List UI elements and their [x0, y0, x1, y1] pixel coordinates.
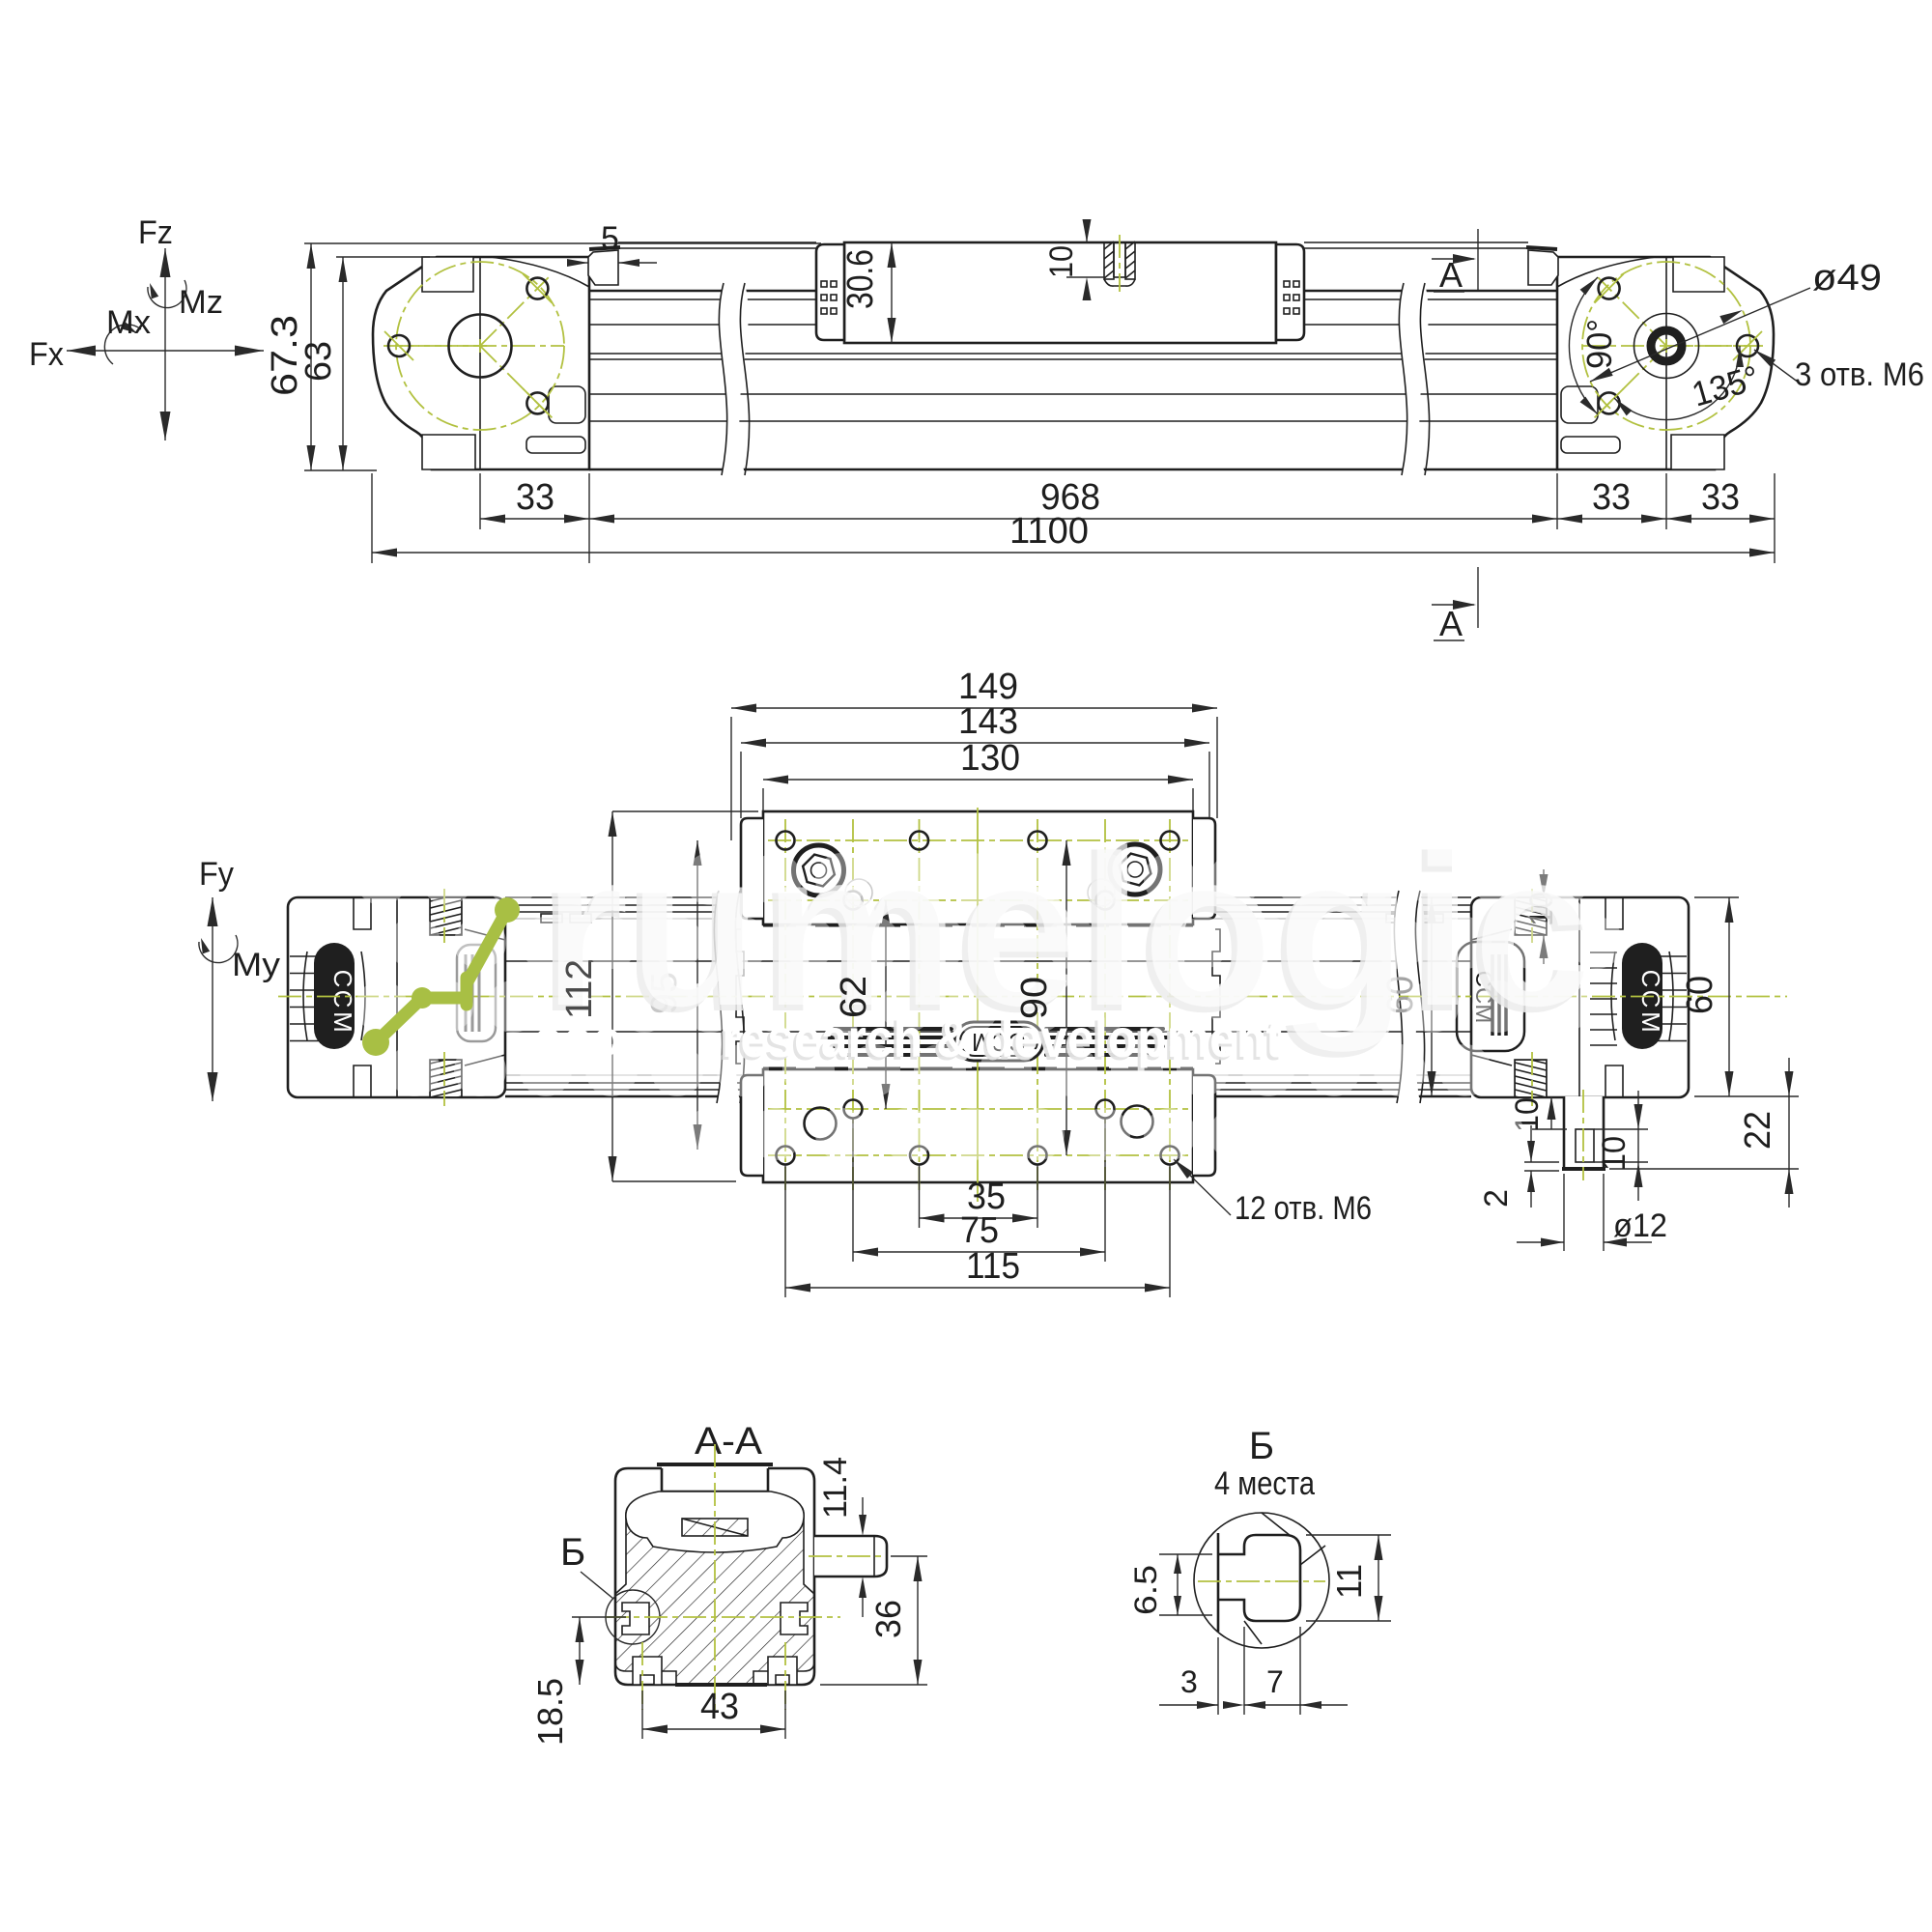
svg-text:C: C: [1636, 990, 1665, 1009]
svg-text:Б: Б: [560, 1531, 585, 1574]
svg-text:60: 60: [1680, 976, 1720, 1014]
svg-text:12 отв. М6: 12 отв. М6: [1235, 1190, 1372, 1227]
svg-text:30.6: 30.6: [840, 249, 881, 309]
svg-text:A: A: [1439, 255, 1463, 295]
svg-text:130: 130: [960, 738, 1020, 779]
svg-text:Fx: Fx: [29, 336, 64, 373]
svg-text:36: 36: [868, 1600, 908, 1638]
svg-text:143: 143: [958, 701, 1018, 742]
svg-text:3: 3: [1180, 1664, 1198, 1699]
svg-text:18.5: 18.5: [530, 1678, 570, 1746]
svg-text:3 отв. М6: 3 отв. М6: [1795, 356, 1924, 393]
svg-text:Fy: Fy: [199, 856, 234, 893]
svg-text:63: 63: [298, 341, 339, 382]
svg-text:Mx: Mx: [106, 304, 151, 341]
svg-text:M: M: [328, 1011, 357, 1033]
svg-text:C: C: [1636, 970, 1665, 988]
svg-text:62: 62: [834, 976, 874, 1018]
svg-text:Б: Б: [1249, 1425, 1274, 1467]
svg-text:10: 10: [1596, 1136, 1633, 1171]
svg-text:22: 22: [1738, 1111, 1778, 1150]
svg-text:Mz: Mz: [179, 284, 223, 321]
svg-text:33: 33: [1592, 477, 1631, 518]
svg-text:My: My: [232, 947, 280, 983]
svg-text:ø12: ø12: [1613, 1207, 1667, 1244]
svg-text:33: 33: [1701, 477, 1740, 518]
svg-text:2: 2: [1478, 1189, 1515, 1207]
svg-text:5: 5: [601, 220, 619, 257]
svg-text:115: 115: [966, 1246, 1020, 1287]
svg-text:M: M: [1636, 1011, 1665, 1033]
svg-text:А-А: А-А: [695, 1420, 762, 1463]
svg-text:research & development: research & development: [722, 1008, 1282, 1068]
svg-text:6.5: 6.5: [1128, 1565, 1163, 1615]
svg-text:11: 11: [1329, 1564, 1369, 1599]
svg-text:C: C: [328, 990, 357, 1009]
svg-text:7: 7: [1266, 1664, 1284, 1699]
svg-text:10: 10: [1043, 245, 1080, 278]
svg-text:Fz: Fz: [138, 214, 173, 251]
svg-text:90: 90: [1014, 977, 1055, 1019]
svg-text:11.4: 11.4: [817, 1457, 854, 1519]
svg-text:90°: 90°: [1579, 319, 1619, 369]
svg-text:4 места: 4 места: [1214, 1465, 1315, 1502]
svg-text:43: 43: [700, 1687, 739, 1727]
svg-text:112: 112: [559, 959, 600, 1019]
svg-text:ø49: ø49: [1812, 258, 1882, 298]
svg-text:C: C: [328, 970, 357, 988]
svg-text:1100: 1100: [1009, 511, 1089, 552]
svg-text:33: 33: [516, 477, 554, 518]
svg-text:75: 75: [960, 1210, 999, 1251]
svg-text:A: A: [1439, 604, 1463, 643]
